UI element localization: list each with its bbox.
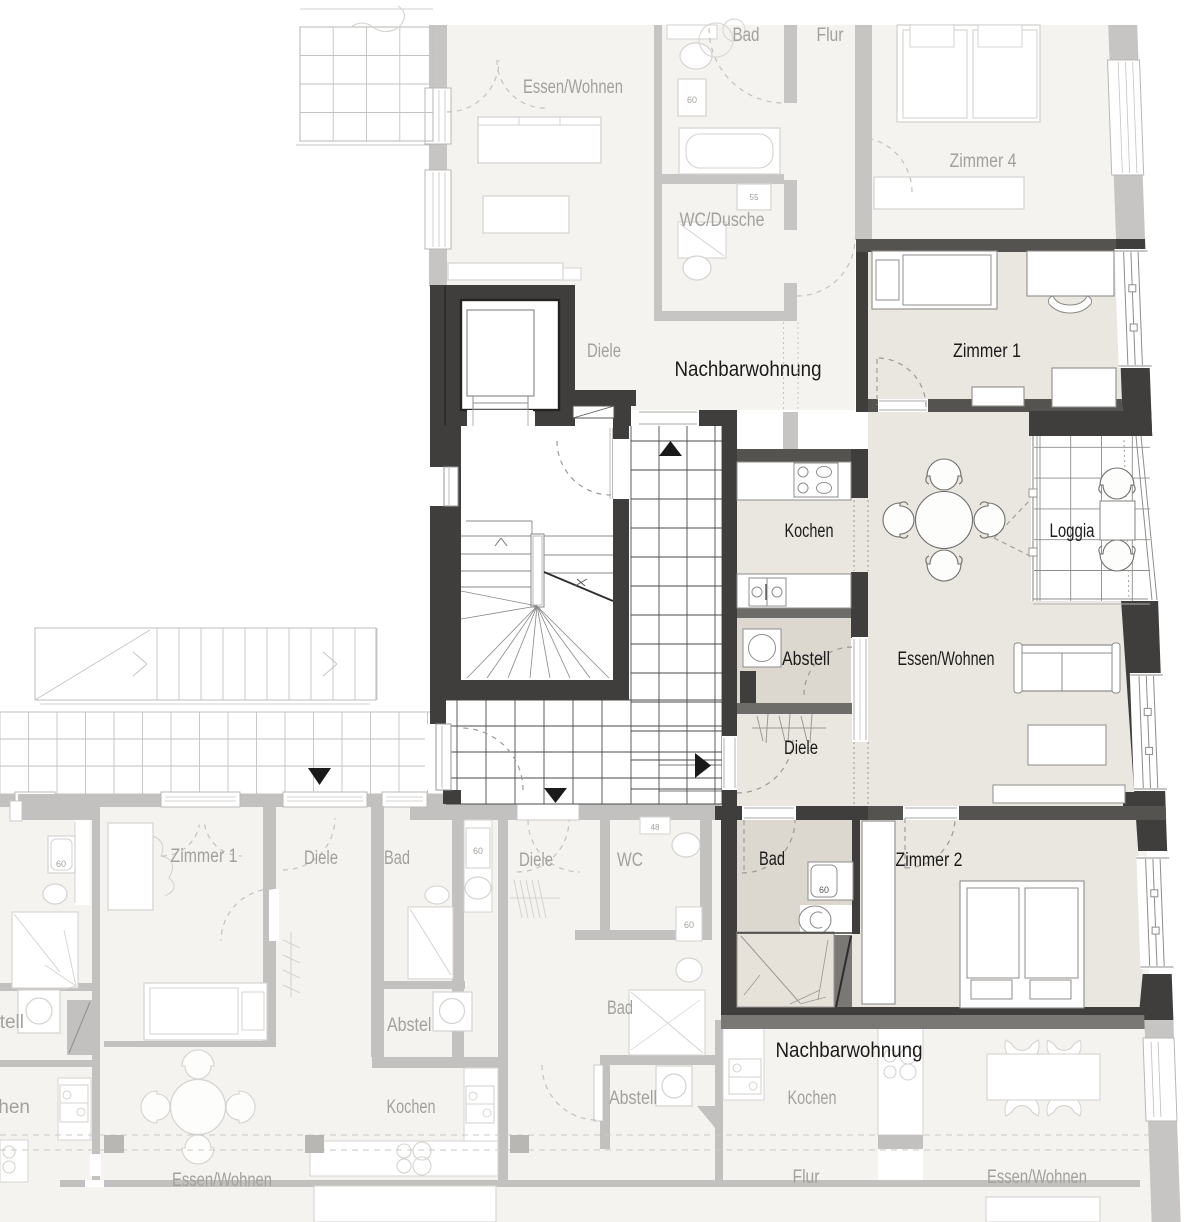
svg-text:Diele: Diele xyxy=(304,848,338,869)
svg-text:Essen/Wohnen: Essen/Wohnen xyxy=(523,77,623,98)
svg-text:Abstell: Abstell xyxy=(609,1088,657,1109)
svg-text:Zimmer 1: Zimmer 1 xyxy=(953,341,1021,362)
svg-text:Abstell: Abstell xyxy=(0,1012,24,1033)
svg-text:60: 60 xyxy=(819,885,829,895)
svg-text:Essen/Wohnen: Essen/Wohnen xyxy=(172,1170,272,1191)
svg-text:Abstell: Abstell xyxy=(782,649,830,670)
svg-text:Abstell: Abstell xyxy=(387,1015,435,1036)
svg-text:Loggia: Loggia xyxy=(1050,521,1095,542)
svg-text:Bad: Bad xyxy=(607,998,633,1019)
svg-text:Bad: Bad xyxy=(384,848,410,869)
svg-text:Kochen: Kochen xyxy=(785,521,834,542)
svg-text:48: 48 xyxy=(651,823,660,832)
svg-text:Bad: Bad xyxy=(733,25,760,46)
svg-text:60: 60 xyxy=(684,920,694,930)
svg-text:Bad: Bad xyxy=(759,849,785,870)
svg-text:Flur: Flur xyxy=(817,25,845,46)
svg-text:WC: WC xyxy=(617,850,643,871)
svg-text:Kochen: Kochen xyxy=(788,1088,837,1109)
svg-text:Zimmer 1: Zimmer 1 xyxy=(171,846,238,867)
svg-text:WC/Dusche: WC/Dusche xyxy=(680,210,765,231)
svg-text:60: 60 xyxy=(56,859,66,869)
svg-text:Nachbarwohnung: Nachbarwohnung xyxy=(776,1039,923,1062)
svg-text:60: 60 xyxy=(473,846,483,856)
svg-text:Kochen: Kochen xyxy=(0,1097,30,1118)
svg-text:Kochen: Kochen xyxy=(387,1097,436,1118)
svg-text:Essen/Wohnen: Essen/Wohnen xyxy=(987,1167,1087,1188)
svg-text:60: 60 xyxy=(687,95,697,105)
svg-text:Diele: Diele xyxy=(587,341,621,362)
svg-text:Flur: Flur xyxy=(793,1167,821,1188)
svg-text:Zimmer 2: Zimmer 2 xyxy=(896,850,963,871)
svg-text:55: 55 xyxy=(750,193,759,202)
svg-text:Diele: Diele xyxy=(784,738,818,759)
svg-text:Nachbarwohnung: Nachbarwohnung xyxy=(675,358,822,381)
svg-text:Essen/Wohnen: Essen/Wohnen xyxy=(898,649,995,670)
svg-text:Zimmer 4: Zimmer 4 xyxy=(950,151,1017,172)
svg-text:Diele: Diele xyxy=(519,850,553,871)
